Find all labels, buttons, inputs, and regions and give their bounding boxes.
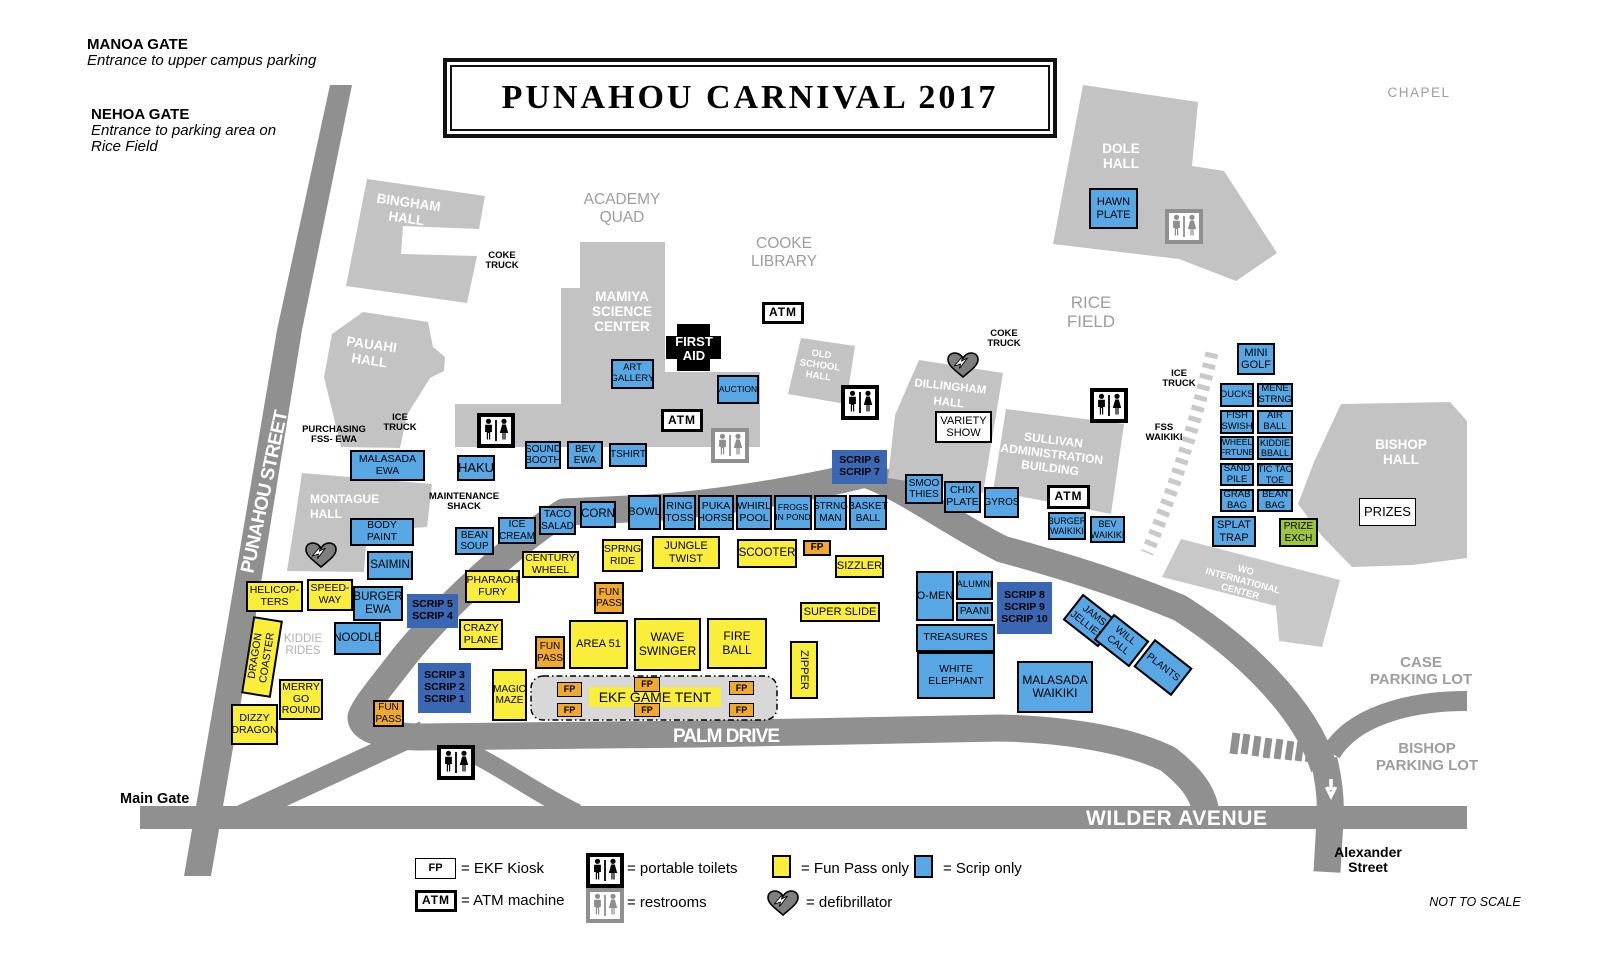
svg-text:MAMIYASCIENCECENTER: MAMIYASCIENCECENTER xyxy=(592,289,652,334)
svg-text:AID: AID xyxy=(683,348,705,363)
svg-text:PALM DRIVE: PALM DRIVE xyxy=(673,726,781,747)
svg-text:DOLEHALL: DOLEHALL xyxy=(1102,141,1140,171)
svg-text:FIRST: FIRST xyxy=(675,334,713,349)
svg-text:WILDER AVENUE: WILDER AVENUE xyxy=(1086,807,1268,830)
